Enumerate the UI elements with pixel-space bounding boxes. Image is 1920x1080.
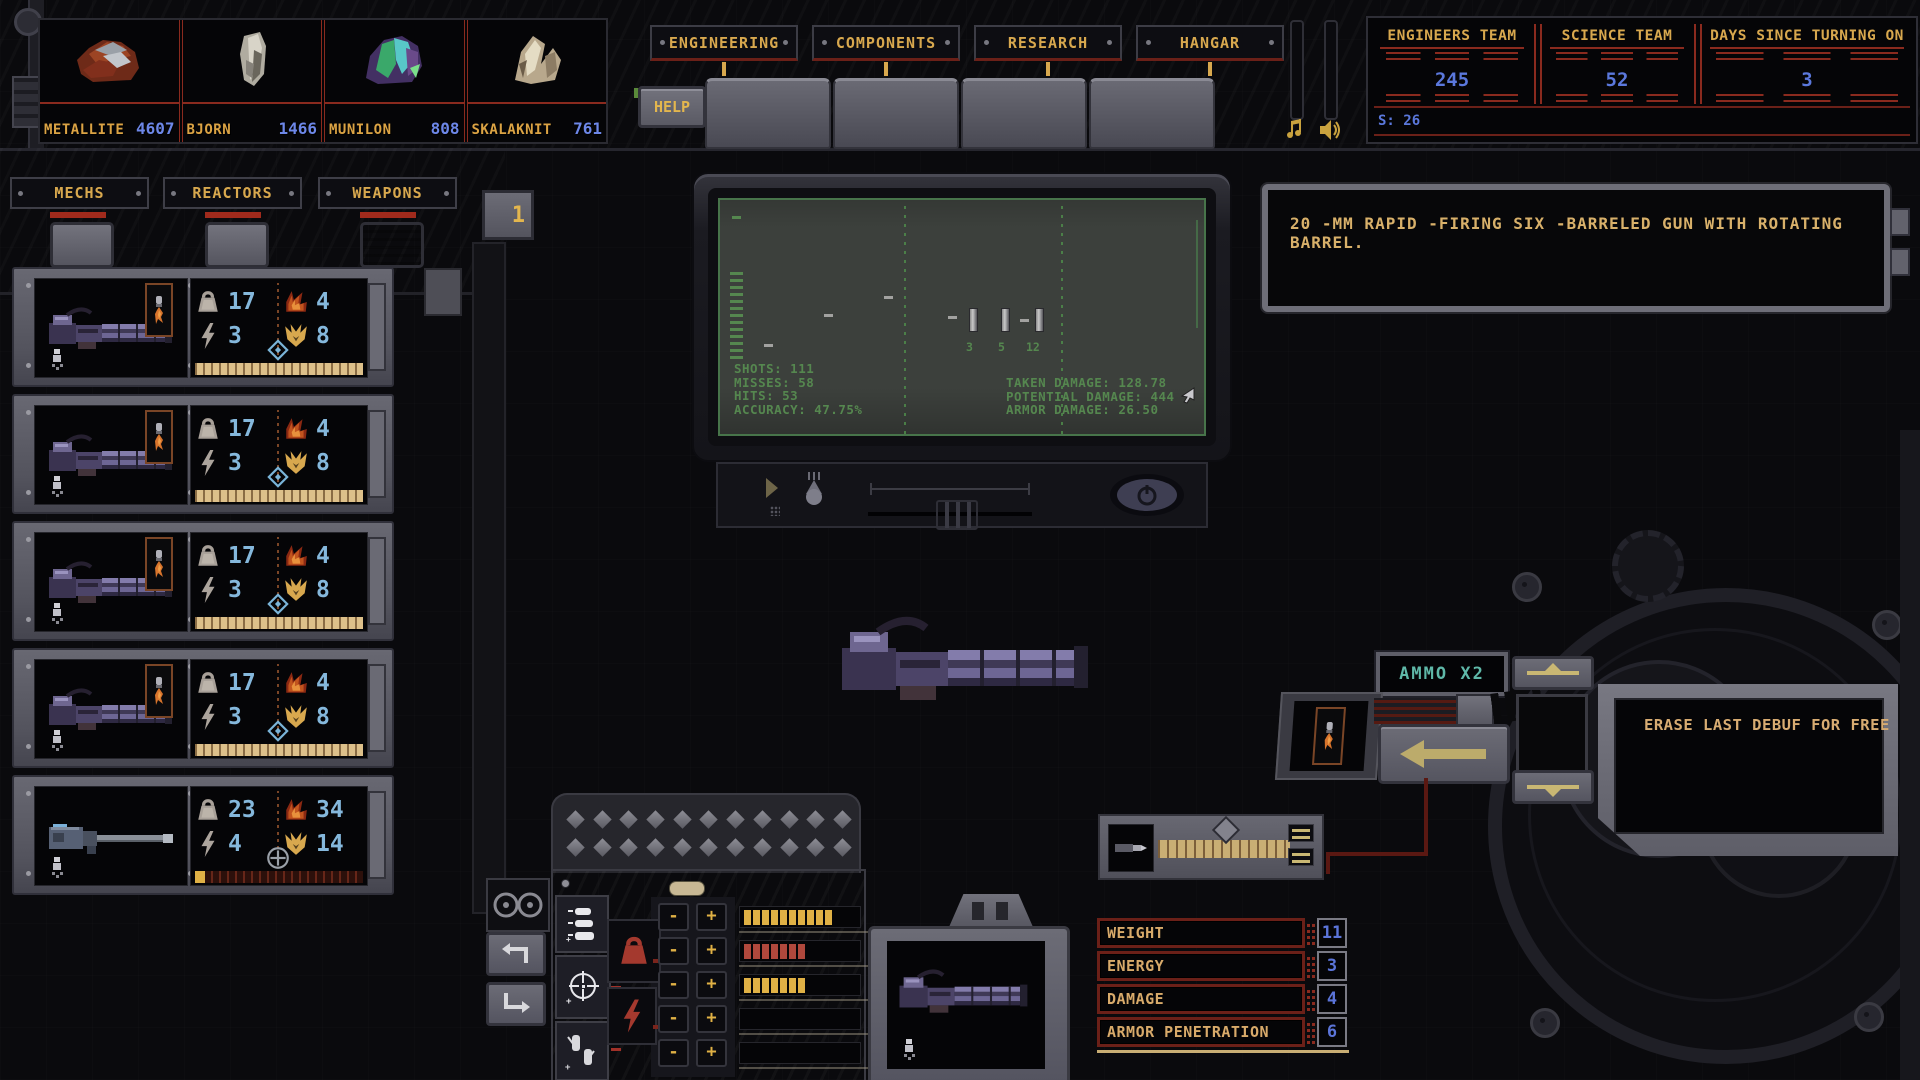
weapons-lever-button[interactable] xyxy=(360,222,424,268)
rail-connector-decoration xyxy=(424,268,462,316)
stat-row-damage: DAMAGE 4 xyxy=(1097,984,1347,1014)
engineers-team-column: ENGINEERS TEAM 245 xyxy=(1374,26,1530,102)
recorder-reels-decoration xyxy=(486,878,550,932)
resource-name: SKALAKNIT xyxy=(472,122,552,138)
table-base-line xyxy=(1097,1050,1349,1053)
weapon-list-item-2[interactable]: 17 3 4 8 xyxy=(12,394,394,514)
tab-label: ENGINEERING xyxy=(669,34,779,52)
reactors-lever-button[interactable] xyxy=(205,222,269,268)
resource-name: METALLITE xyxy=(44,122,124,138)
status-board: ENGINEERS TEAM 245 SCIENCE TEAM 52 DAYS … xyxy=(1366,16,1918,144)
bolt-decoration xyxy=(1872,610,1902,640)
stat-label: DAMAGE xyxy=(1097,984,1305,1014)
pilot-icon xyxy=(49,730,65,752)
tab-pointer xyxy=(722,62,726,76)
tab-pointer xyxy=(1208,62,1212,76)
upgrade-row-2: - + xyxy=(553,937,864,967)
screw-icon xyxy=(783,40,788,45)
damage-value: 4 xyxy=(316,289,330,315)
monitor-control-panel xyxy=(716,462,1208,528)
blank-slot-button[interactable] xyxy=(1089,78,1215,149)
pipe-decoration xyxy=(1900,430,1920,1080)
resource-bjorn: BJORN1466 xyxy=(183,20,326,142)
hits-line: HITS: 53 xyxy=(734,389,862,403)
minus-glyph: - xyxy=(668,1008,678,1028)
decrease-button[interactable]: - xyxy=(658,937,689,965)
weapon-preview xyxy=(34,532,188,632)
page-number: 1 xyxy=(512,203,525,228)
bjorn-ore-icon xyxy=(216,30,288,90)
handle-slot xyxy=(972,902,984,920)
durability-fill xyxy=(195,871,205,883)
upgrade-row-5: - + xyxy=(553,1039,864,1069)
resource-panel: METALLITE4607 BJORN1466 MUNILON808 SKALA… xyxy=(38,18,608,144)
energy-value: 3 xyxy=(228,704,242,730)
handle-slot xyxy=(996,902,1008,920)
damage-icon xyxy=(283,543,309,569)
target-mode-icon xyxy=(265,845,291,871)
gauge-adjust-upper[interactable] xyxy=(1288,824,1314,842)
weapon-list-item-4[interactable]: 17 3 4 8 xyxy=(12,648,394,768)
bolt-decoration xyxy=(1530,1008,1560,1038)
weapon-description-panel: 20 -MM RAPID -FIRING SIX -BARRELED GUN W… xyxy=(1262,184,1890,312)
mini-weapon-sprite xyxy=(895,969,1035,1021)
weapon-list-item-1[interactable]: 17 3 4 8 xyxy=(12,267,394,387)
energy-icon xyxy=(195,450,221,476)
resource-name: MUNILON xyxy=(329,122,392,138)
ammo-multiplier-badge: AMMO X2 xyxy=(1376,652,1508,696)
armor-damage-line: ARMOR DAMAGE: 26.50 xyxy=(1006,403,1175,417)
ammo-item[interactable] xyxy=(1312,707,1346,765)
resource-value: 1466 xyxy=(278,119,317,138)
upgrade-level-bar xyxy=(739,1008,861,1030)
energy-value: 3 xyxy=(228,577,242,603)
redo-button[interactable] xyxy=(486,982,546,1026)
stat-row-armor-penetration: ARMOR PENETRATION 6 xyxy=(1097,1017,1347,1047)
tab-indicator xyxy=(360,212,416,218)
damage-icon xyxy=(283,670,309,696)
durability-ruler xyxy=(195,490,363,502)
taken-damage-line: TAKEN DAMAGE: 128.78 xyxy=(1006,376,1175,390)
energy-icon xyxy=(195,704,221,730)
stat-label: ENERGY xyxy=(1097,951,1305,981)
screen-edge-trace xyxy=(1196,220,1198,328)
plus-glyph: + xyxy=(706,974,716,994)
stat-row-energy: ENERGY 3 xyxy=(1097,951,1347,981)
target-mode-icon xyxy=(265,591,291,617)
mini-display-screen xyxy=(887,941,1045,1069)
ammo-gauge-panel xyxy=(1098,814,1324,880)
damage-icon xyxy=(283,416,309,442)
target-count: 3 xyxy=(966,340,973,354)
reels-icon xyxy=(488,880,548,930)
pilot-icon xyxy=(49,476,65,498)
stat-value: 4 xyxy=(1317,984,1347,1014)
weapon-list-item-3[interactable]: 17 3 4 8 xyxy=(12,521,394,641)
mouse-cursor xyxy=(1178,386,1196,404)
screen-mark xyxy=(732,216,741,219)
metallite-ore-icon xyxy=(73,30,145,90)
range-scale xyxy=(730,272,743,359)
screw-icon xyxy=(26,664,31,669)
connector-dots xyxy=(1307,954,1315,978)
screw-icon xyxy=(26,537,31,542)
speaker-icon xyxy=(1318,118,1342,142)
ammo-multiplier-label: AMMO X2 xyxy=(1399,664,1485,684)
resource-munilon: MUNILON808 xyxy=(325,20,468,142)
days-label: DAYS SINCE TURNING ON xyxy=(1710,28,1904,49)
screw-icon xyxy=(26,791,31,796)
side-rail-decoration xyxy=(472,242,506,914)
science-team-value: 52 xyxy=(1544,69,1690,91)
cable-decoration xyxy=(1326,852,1330,874)
stat-label: ARMOR PENETRATION xyxy=(1097,1017,1305,1047)
durability-fill xyxy=(195,363,363,375)
target-mode-icon xyxy=(265,337,291,363)
tab-label: MECHS xyxy=(54,184,104,202)
cable-decoration xyxy=(1424,778,1428,856)
replay-slider-handle[interactable] xyxy=(936,500,978,530)
stat-row-weight: WEIGHT 11 xyxy=(1097,918,1347,948)
durability-fill xyxy=(195,490,363,502)
ammo-pickup-icon xyxy=(145,664,173,718)
tab-pointer xyxy=(1046,62,1050,76)
energy-icon xyxy=(195,831,221,857)
damage-icon xyxy=(283,289,309,315)
increase-button[interactable]: + xyxy=(696,1005,727,1033)
bolt-decoration xyxy=(1854,1002,1884,1032)
weapon-stats: 17 3 4 8 xyxy=(190,532,368,632)
resource-value: 808 xyxy=(431,119,460,138)
hinge-decoration xyxy=(368,537,386,625)
decrease-button[interactable]: - xyxy=(658,971,689,999)
battle-stats-right: TAKEN DAMAGE: 128.78 POTENTIAL DAMAGE: 4… xyxy=(1006,376,1175,417)
plus-glyph: + xyxy=(706,1008,716,1028)
resource-skalaknit: SKALAKNIT761 xyxy=(468,20,607,142)
hinge-decoration xyxy=(368,410,386,498)
tab-indicator xyxy=(205,212,261,218)
lamp-shade-icon xyxy=(766,478,778,498)
projectile xyxy=(1020,319,1029,322)
deco-dashes xyxy=(1386,52,1518,60)
undo-arrow-icon xyxy=(500,941,532,967)
target-count: 5 xyxy=(998,340,1005,354)
music-volume-slider[interactable] xyxy=(1290,20,1304,120)
armor-pen-value: 8 xyxy=(316,323,330,349)
hinge-decoration xyxy=(1890,248,1910,276)
weapon-stats: 17 3 4 8 xyxy=(190,278,368,378)
deco-dashes xyxy=(1386,94,1518,102)
screw-icon xyxy=(660,40,665,45)
engineers-team-label: ENGINEERS TEAM xyxy=(1380,28,1524,49)
increase-button[interactable]: + xyxy=(696,1039,727,1067)
target-blip xyxy=(1001,308,1010,332)
days-value: 3 xyxy=(1704,69,1910,91)
erase-debuf-panel[interactable]: ERASE LAST DEBUF FOR FREE xyxy=(1598,684,1898,856)
shots-line: SHOTS: 111 xyxy=(734,362,862,376)
target-count: 12 xyxy=(1026,340,1040,354)
tab-engineering[interactable]: ENGINEERING xyxy=(650,25,798,61)
crt-screen: 3 5 12 SHOTS: 111 MISSES: 58 HITS: 53 AC… xyxy=(718,198,1206,436)
weight-icon xyxy=(195,670,221,696)
weight-icon xyxy=(195,543,221,569)
damage-value: 4 xyxy=(316,416,330,442)
sprocket-decoration xyxy=(1612,530,1684,602)
deco-dashes xyxy=(1716,94,1898,102)
screw-icon xyxy=(326,191,331,196)
s-counter: S: 26 xyxy=(1374,106,1910,136)
plus-glyph: + xyxy=(706,1042,716,1062)
mini-display-panel xyxy=(868,926,1070,1080)
energy-icon xyxy=(195,577,221,603)
cable-decoration xyxy=(1326,852,1428,856)
tab-label: HANGAR xyxy=(1180,34,1240,52)
pilot-icon xyxy=(901,1039,917,1061)
down-arrow-icon xyxy=(1527,785,1579,789)
target-blip xyxy=(1035,308,1044,332)
bulb-icon xyxy=(800,472,828,506)
durability-ruler xyxy=(195,871,363,883)
install-ammo-button[interactable] xyxy=(1378,724,1510,784)
science-team-column: SCIENCE TEAM 52 xyxy=(1544,26,1690,102)
tab-pointer xyxy=(884,62,888,76)
display-handle xyxy=(938,894,1044,928)
engineers-team-value: 245 xyxy=(1374,69,1530,91)
crt-monitor: 3 5 12 SHOTS: 111 MISSES: 58 HITS: 53 AC… xyxy=(692,172,1232,462)
slot-down-button[interactable] xyxy=(1512,770,1594,804)
weapon-stats: 23 4 34 14 xyxy=(190,786,368,886)
screw-icon xyxy=(561,879,570,888)
stat-label: WEIGHT xyxy=(1097,918,1305,948)
upgrade-row-3: - + xyxy=(553,971,864,1001)
divider xyxy=(1694,24,1702,104)
music-note-icon xyxy=(1284,118,1308,142)
screw-icon xyxy=(984,40,989,45)
ammo-icon xyxy=(1321,721,1337,751)
resource-metallite: METALLITE4607 xyxy=(40,20,183,142)
connector-dots xyxy=(1307,1020,1315,1044)
screw-icon xyxy=(945,40,950,45)
weight-value: 17 xyxy=(228,670,256,696)
cable-bundle-decoration xyxy=(1374,698,1458,724)
upgrade-level-bar xyxy=(739,940,861,962)
target-mode-icon xyxy=(265,718,291,744)
projectile xyxy=(884,296,893,299)
damage-icon xyxy=(283,797,309,823)
durability-ruler xyxy=(195,363,363,375)
decrease-button[interactable]: - xyxy=(658,1005,689,1033)
potential-damage-line: POTENTIAL DAMAGE: 444 xyxy=(1006,390,1175,404)
erase-debuf-screen: ERASE LAST DEBUF FOR FREE xyxy=(1614,698,1884,834)
connector-dots xyxy=(1307,921,1315,945)
increase-button[interactable]: + xyxy=(696,937,727,965)
deco-dashes xyxy=(1556,94,1678,102)
workbench-header xyxy=(551,793,861,873)
stat-value: 3 xyxy=(1317,951,1347,981)
energy-value: 4 xyxy=(228,831,242,857)
resource-value: 4607 xyxy=(136,119,175,138)
weight-icon xyxy=(195,416,221,442)
power-button[interactable] xyxy=(1117,479,1177,511)
tab-mechs[interactable]: MECHS xyxy=(10,177,149,209)
armor-pen-value: 8 xyxy=(316,577,330,603)
upgrade-level-bar xyxy=(739,1042,861,1064)
upgrade-board: - + - + - + - + - + xyxy=(551,869,866,1080)
hinge-decoration xyxy=(368,283,386,371)
pilot-icon xyxy=(49,603,65,625)
stat-value: 11 xyxy=(1317,918,1347,948)
weapon-stats: 17 3 4 8 xyxy=(190,659,368,759)
target-mode-icon xyxy=(265,464,291,490)
upgrade-level-bar xyxy=(739,974,861,996)
weight-value: 17 xyxy=(228,289,256,315)
screw-icon xyxy=(289,191,294,196)
selected-weapon-sprite[interactable] xyxy=(728,616,1208,716)
pilot-icon xyxy=(49,349,65,371)
tab-weapons[interactable]: WEAPONS xyxy=(318,177,457,209)
left-arrow-icon xyxy=(1396,736,1492,772)
bullet-icon xyxy=(1113,840,1149,856)
skalaknit-ore-icon xyxy=(501,30,573,90)
tab-indicator xyxy=(50,212,106,218)
stud-row xyxy=(569,813,849,826)
increase-button[interactable]: + xyxy=(696,903,727,931)
blank-slot-button[interactable] xyxy=(961,78,1087,149)
plus-glyph: + xyxy=(706,906,716,926)
tab-research[interactable]: RESEARCH xyxy=(974,25,1122,61)
weapon-stats: 17 3 4 8 xyxy=(190,405,368,505)
projectile xyxy=(764,344,773,347)
science-team-label: SCIENCE TEAM xyxy=(1550,28,1684,49)
screw-icon xyxy=(18,191,23,196)
misses-line: MISSES: 58 xyxy=(734,376,862,390)
weight-value: 23 xyxy=(228,797,256,823)
tab-label: RESEARCH xyxy=(1008,34,1088,52)
pilot-icon xyxy=(49,857,65,879)
erase-debuf-text: ERASE LAST DEBUF FOR FREE xyxy=(1616,700,1882,734)
increase-button[interactable]: + xyxy=(696,971,727,999)
weapon-preview xyxy=(34,278,188,378)
weight-icon xyxy=(195,797,221,823)
slider-guide xyxy=(870,488,1030,490)
armor-pen-value: 8 xyxy=(316,450,330,476)
screw-icon xyxy=(1146,40,1151,45)
ammo-pickup-icon xyxy=(145,283,173,337)
weapon-preview xyxy=(34,659,188,759)
hinge-decoration xyxy=(368,791,386,879)
energy-icon xyxy=(195,323,221,349)
tab-label: WEAPONS xyxy=(352,184,422,202)
up-arrow-icon xyxy=(1527,671,1579,675)
hinge-decoration xyxy=(368,664,386,752)
help-button[interactable]: HELP xyxy=(638,86,706,128)
hinge-decoration xyxy=(1890,208,1910,236)
energy-value: 3 xyxy=(228,323,242,349)
durability-fill xyxy=(195,617,363,629)
weapon-description-text: 20 -MM RAPID -FIRING SIX -BARRELED GUN W… xyxy=(1268,190,1884,276)
bullet-window xyxy=(1108,824,1154,872)
target-blip xyxy=(969,308,978,332)
mechs-lever-button[interactable] xyxy=(50,222,114,268)
minus-glyph: - xyxy=(668,1042,678,1062)
armor-pen-value: 8 xyxy=(316,704,330,730)
screw-icon xyxy=(444,191,449,196)
undo-button[interactable] xyxy=(486,932,546,976)
power-icon xyxy=(1135,483,1159,507)
screw-icon xyxy=(136,191,141,196)
weight-value: 17 xyxy=(228,543,256,569)
blank-slot-button[interactable] xyxy=(705,78,831,149)
durability-fill xyxy=(195,744,363,756)
tab-hangar[interactable]: HANGAR xyxy=(1136,25,1284,61)
fuse-decoration xyxy=(669,881,705,896)
stud-row xyxy=(569,841,849,854)
stat-value: 6 xyxy=(1317,1017,1347,1047)
tab-label: COMPONENTS xyxy=(836,34,936,52)
sound-volume-slider[interactable] xyxy=(1324,20,1338,120)
minus-glyph: - xyxy=(668,974,678,994)
upgrade-row-4: - + xyxy=(553,1005,864,1035)
battle-stats-left: SHOTS: 111 MISSES: 58 HITS: 53 ACCURACY:… xyxy=(734,362,862,416)
weapon-list-item-5[interactable]: 23 4 34 14 xyxy=(12,775,394,895)
resource-name: BJORN xyxy=(187,122,232,138)
munilon-ore-icon xyxy=(358,30,430,90)
gauge-adjust-lower[interactable] xyxy=(1288,848,1314,866)
ammo-pickup-icon xyxy=(145,410,173,464)
accuracy-line: ACCURACY: 47.75% xyxy=(734,403,862,417)
plus-glyph: + xyxy=(706,940,716,960)
weight-icon xyxy=(195,289,221,315)
blank-slot-button[interactable] xyxy=(833,78,959,149)
tab-reactors[interactable]: REACTORS xyxy=(163,177,302,209)
upgrade-level-bar xyxy=(739,906,861,928)
decrease-button[interactable]: - xyxy=(658,1039,689,1067)
page-indicator: 1 xyxy=(482,190,534,240)
tab-components[interactable]: COMPONENTS xyxy=(812,25,960,61)
tab-label: REACTORS xyxy=(192,184,272,202)
damage-value: 34 xyxy=(316,797,344,823)
weight-value: 17 xyxy=(228,416,256,442)
connector-dots xyxy=(1307,987,1315,1011)
redo-arrow-icon xyxy=(500,991,532,1017)
slot-up-button[interactable] xyxy=(1512,656,1594,690)
help-label: HELP xyxy=(654,98,690,116)
damage-value: 4 xyxy=(316,670,330,696)
upgrade-row-1: - + xyxy=(553,903,864,933)
weapon-preview xyxy=(34,786,188,886)
vent-dots-decoration xyxy=(770,506,780,516)
screw-icon xyxy=(822,40,827,45)
weapon-preview xyxy=(34,405,188,505)
screw-icon xyxy=(26,410,31,415)
ammo-slot-panel xyxy=(1275,692,1383,780)
armor-pen-value: 14 xyxy=(316,831,344,857)
projectile xyxy=(948,316,957,319)
screw-icon xyxy=(26,283,31,288)
divider xyxy=(1534,24,1542,104)
durability-ruler xyxy=(195,617,363,629)
game-root: + + + M xyxy=(0,0,1920,1080)
projectile xyxy=(824,314,833,317)
minus-glyph: - xyxy=(668,940,678,960)
screw-icon xyxy=(171,191,176,196)
deco-dashes xyxy=(1716,52,1898,60)
durability-ruler xyxy=(195,744,363,756)
ammo-pickup-icon xyxy=(145,537,173,591)
bolt-decoration xyxy=(1512,572,1542,602)
decrease-button[interactable]: - xyxy=(658,903,689,931)
days-column: DAYS SINCE TURNING ON 3 xyxy=(1704,26,1910,102)
